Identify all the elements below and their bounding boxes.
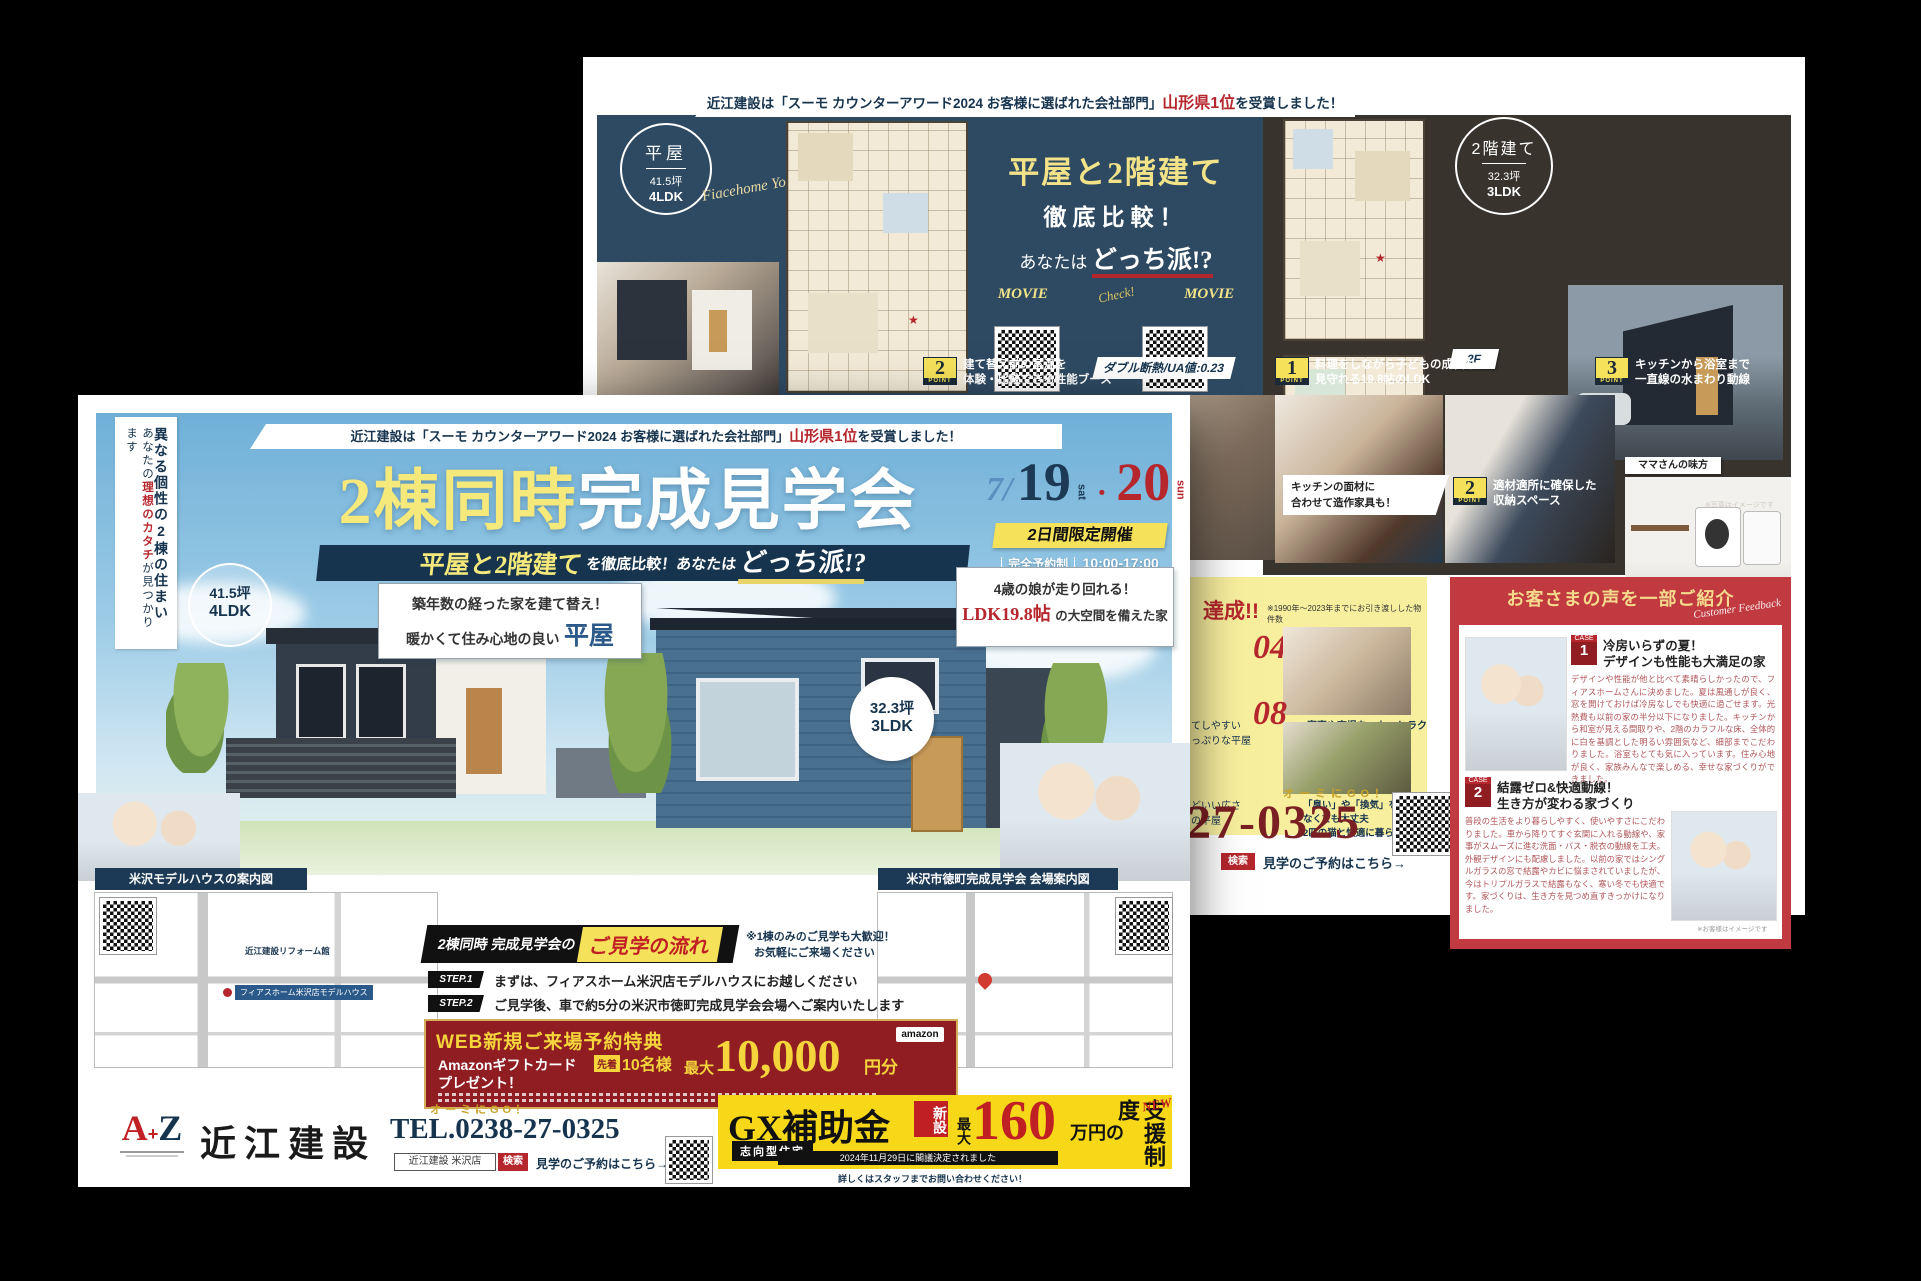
gx-box: GX補助金 志向型住宅 新設 最大 160 万円の 支援制度 NEW 2024年…: [718, 1095, 1172, 1169]
voice-card: CASE 1 冷房いらずの夏！ デザインも性能も大満足の家 デザインや性能が他と…: [1459, 625, 1782, 939]
front-award-em: 山形県1位: [789, 428, 857, 445]
bubble-nikai: 4歳の娘が走り回れる！ LDK19.8帖 の大空間を備えた家: [956, 567, 1174, 647]
map-right-qr: [1116, 898, 1172, 954]
bubble-hiraya-line1: 築年数の経った家を建て替え！: [379, 594, 641, 614]
bubble-hiraya: 築年数の経った家を建て替え！ 暖かくて住み心地の良い 平屋: [378, 583, 642, 659]
zosaku-caption: キッチンの面材に 合わせて造作家具も！: [1283, 475, 1449, 515]
back-award-post: を受賞しました！: [1235, 96, 1343, 111]
tree: [166, 663, 236, 773]
main-title-rest: 完成見学会: [578, 465, 918, 538]
date-week1: sat: [1075, 484, 1087, 500]
back-award-em: 山形県1位: [1162, 95, 1235, 112]
back-search-badge: 検索: [1221, 853, 1255, 870]
item08-num: 08: [1253, 695, 1287, 733]
date-day2: 20: [1116, 452, 1170, 512]
subtitle-band: 平屋と2階建て を徹底比較！あなたは どっち派!?: [316, 545, 970, 581]
search-button: 検索: [498, 1153, 528, 1171]
nikai-floorplan-2f: ★: [1285, 121, 1423, 339]
front-phone: TEL.0238-27-0325: [390, 1113, 620, 1146]
logo-plus: +: [148, 1124, 159, 1144]
star-icon: ★: [908, 313, 919, 327]
tree: [596, 653, 676, 793]
hiraya-size: 41.5坪: [622, 173, 710, 189]
point2-badge: 2POINT: [923, 357, 957, 385]
case2-photo: [1671, 811, 1777, 921]
case1-body: デザインや性能が他と比べて素晴らしかったので、フィアスホームさんに決めました。夏…: [1571, 673, 1775, 786]
tassei-note: ※1990年～2023年までにお引き渡しした物件数: [1267, 603, 1427, 625]
front-flyer: 異なる個性の2棟の住まい あなたの理想のカタチが見つかります 近江建設は「スーモ…: [78, 395, 1190, 1187]
map-left-qr: [100, 898, 156, 954]
badge-41: 41.5坪 4LDK: [188, 563, 272, 647]
logo-z: Z: [158, 1108, 182, 1148]
case2-title2: 生き方が変わる家づくり: [1497, 793, 1635, 812]
hiraya-floorplan: ★: [788, 123, 966, 391]
search-box: 近江建設 米沢店: [394, 1153, 496, 1171]
flow-header: 2棟同時 完成見学会の ご見学の流れ: [421, 925, 740, 963]
back-reserve-qr: [1393, 793, 1455, 855]
frag1-text: てしやすい っぷりな平屋: [1191, 719, 1251, 749]
nikai-size: 32.3坪: [1457, 168, 1551, 184]
tassei-label: 達成!!: [1203, 595, 1259, 625]
case2-photo-note: ※お客様はイメージです: [1697, 923, 1767, 933]
logo-a: A: [122, 1108, 148, 1148]
back-title-2: 徹底比較！: [973, 198, 1259, 232]
side-copy-col2: あなたの理想のカタチが見つかります: [123, 427, 155, 642]
flow-note: ※1棟のみのご見学も大歓迎！ お気軽にご来場ください: [746, 929, 936, 961]
movie-right-label: MOVIE: [1184, 286, 1234, 303]
map-left: 近江建設リフォーム館 フィアスホーム米沢店モデルハウス: [95, 893, 437, 1067]
flow-header-em: ご見学の流れ: [577, 927, 723, 962]
gx-max: 最大: [954, 1117, 974, 1145]
company-name: 近江建設: [200, 1115, 376, 1167]
map-left-label2: フィアスホーム米沢店モデルハウス: [235, 985, 373, 1000]
map-right-pin-icon: [975, 970, 995, 990]
gx-new-script: NEW: [1141, 1095, 1173, 1116]
map-left-marker: [223, 988, 232, 997]
ua-value-tag: ダブル断熱/UA値:0.23: [1092, 357, 1235, 379]
offer-unit: 円分: [864, 1053, 898, 1078]
date-month: 7/: [986, 471, 1012, 508]
back-award-banner: 近江建設は「スーモ カウンターアワード2024 お客様に選ばれた会社部門」山形県…: [695, 90, 1355, 117]
case2-body: 普段の生活をより暮らしやすく、使いやすさにこだわりました。車から降りてすぐ玄関に…: [1465, 815, 1665, 915]
front-award-banner: 近江建設は「スーモ カウンターアワード2024 お客様に選ばれた会社部門」山形県…: [250, 424, 1062, 449]
hiraya-exterior-photo: [597, 262, 779, 402]
date-day1: 19: [1017, 452, 1071, 512]
washer-door-icon: [1705, 519, 1729, 549]
step2-text: ご見学後、車で約5分の米沢市徳町完成見学会会場へご案内いたします: [494, 995, 904, 1014]
offer-line2: プレゼント！: [438, 1073, 522, 1093]
step2-tag: STEP.2: [428, 995, 484, 1012]
subtitle-em1: 平屋と2階建て: [418, 545, 584, 581]
map-left-tag: 米沢モデルハウスの案内図: [95, 868, 307, 890]
back-title-3em: どっち派!?: [1092, 247, 1213, 278]
case1-photo: [1465, 637, 1567, 771]
nikai-badge: 2階建て 32.3坪 3LDK: [1455, 117, 1553, 215]
offer-title: WEB新規ご来場予約特典: [436, 1027, 663, 1054]
bubble-nikai-line2: の大空間を備えた家: [1055, 609, 1168, 623]
point2b-badge: 2POINT: [1453, 477, 1487, 505]
map-left-label1: 近江建設リフォーム館: [245, 945, 330, 957]
event-date: 7/ 19 sat ・ 20 sun: [986, 451, 1176, 513]
gx-new-tag: 新設: [914, 1101, 948, 1137]
voice-section: お客さまの声を一部ご紹介 Customer Feedback CASE 1 冷房…: [1450, 577, 1791, 949]
front-award-pre: 近江建設は「スーモ カウンターアワード2024 お客様に選ばれた会社部門」: [351, 429, 790, 444]
offer-line1: Amazonギフトカード: [438, 1055, 576, 1075]
offer-amount: 10,000: [714, 1029, 841, 1082]
bubble-hiraya-line2: 暖かくて住み心地の良い: [406, 631, 560, 647]
bubble-hiraya-em: 平屋: [564, 623, 614, 650]
nikai-ldk: 3LDK: [1457, 184, 1551, 199]
flow-header-pre: 2棟同時 完成見学会の: [422, 934, 577, 954]
offer-max: 最大: [684, 1057, 714, 1078]
point1-badge: 1POINT: [1275, 357, 1309, 385]
subtitle-mid: を徹底比較！あなたは: [585, 553, 737, 574]
mama-tag: ママさんの味方: [1625, 457, 1721, 474]
gx-note: 2024年11月29日に閣議決定されました: [778, 1151, 1058, 1165]
date-week2: sun: [1175, 480, 1187, 500]
main-title-em: 2棟同時: [339, 465, 578, 538]
subtitle-em2: どっち派!?: [738, 542, 868, 584]
gx-amount: 160: [972, 1089, 1056, 1153]
front-reserve-qr: [666, 1137, 712, 1183]
map-right-tag: 米沢市徳町完成見学会 会場案内図: [878, 868, 1118, 890]
back-title-1: 平屋と2階建て: [973, 147, 1259, 192]
offer-first: 先着: [594, 1055, 620, 1072]
bubble-nikai-line1: 4歳の娘が走り回れる！: [957, 578, 1173, 598]
item04-photo: [1283, 627, 1411, 715]
bubble-nikai-em: LDK19.8帖: [962, 604, 1051, 624]
back-title-3pre: あなたは: [1019, 253, 1087, 272]
item04-num: 04: [1253, 629, 1287, 667]
offer-count: 10名様: [622, 1051, 672, 1075]
point1-text: 料理をしながら子どもの成長を 見守れる19.8帖のLDK: [1315, 358, 1505, 388]
photo-note: ※写真はイメージです: [1705, 500, 1774, 510]
main-title: 2棟同時完成見学会: [248, 447, 1008, 543]
case1-title2: デザインも性能も大満足の家: [1603, 651, 1766, 670]
family-photo-right: [1000, 743, 1190, 881]
front-reserve-text: 見学のご予約はこちら→: [536, 1155, 668, 1172]
hiraya-name: 平屋: [622, 139, 710, 164]
date-dot: ・: [1092, 483, 1112, 505]
item08-photo: [1283, 722, 1411, 794]
hiraya-ldk: 4LDK: [622, 189, 710, 204]
amazon-tag: amazon: [896, 1027, 944, 1042]
badge-32: 32.3坪 3LDK: [850, 677, 934, 761]
limited-tag: 2日間限定開催: [992, 523, 1168, 548]
back-reserve-text: 見学のご予約はこちら→: [1263, 853, 1406, 872]
front-award-post: を受賞しました！: [857, 429, 961, 444]
step1-text: まずは、フィアスホーム米沢店モデルハウスにお越しください: [494, 971, 857, 990]
point3-text: キッチンから浴室まで 一直線の水まわり動線: [1635, 358, 1795, 388]
movie-check-label: Check!: [1096, 283, 1135, 306]
movie-left-label: MOVIE: [998, 286, 1048, 303]
case1-badge: CASE 1: [1571, 635, 1597, 665]
case2-badge: CASE 2: [1465, 777, 1491, 807]
back-title-block: 平屋と2階建て 徹底比較！ あなたは どっち派!? MOVIE Check! M…: [973, 147, 1259, 303]
back-award-pre: 近江建設は「スーモ カウンターアワード2024 お客様に選ばれた会社部門」: [707, 96, 1163, 111]
gx-ask-note: 詳しくはスタッフまでお問い合わせください！: [838, 1172, 1027, 1185]
side-copy: 異なる個性の2棟の住まい あなたの理想のカタチが見つかります: [115, 417, 177, 649]
point3-badge: 3POINT: [1595, 357, 1629, 385]
point2b-text: 適材適所に確保した 収納スペース: [1493, 479, 1623, 509]
nikai-name: 2階建て: [1457, 135, 1551, 159]
star-icon: ★: [1375, 251, 1386, 265]
step1-tag: STEP.1: [428, 971, 484, 988]
hiraya-badge: 平屋 41.5坪 4LDK: [620, 123, 712, 215]
company-logo: A+Z: [112, 1107, 192, 1169]
